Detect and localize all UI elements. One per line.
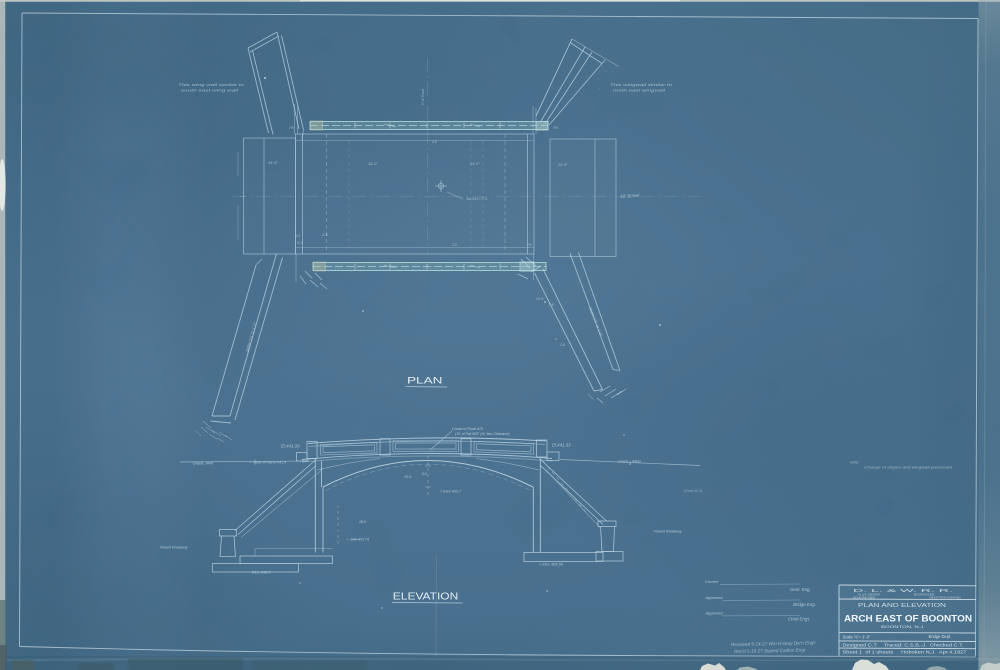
svg-text:C of Track: C of Track [421,88,425,105]
svg-text:This wingwall similar to: This wingwall similar to [610,82,673,87]
svg-text:14'-6: 14'-6 [536,297,544,301]
svg-text:south east wing wall: south east wing wall [181,88,238,93]
svg-text:28-6: 28-6 [358,520,366,524]
svg-text:18'-6: 18'-6 [404,475,412,479]
svg-text:× Elev 385.50: × Elev 385.50 [539,562,564,567]
svg-text:MILES FROM HOBOKEN: MILES FROM HOBOKEN [930,596,961,600]
svg-text:( El. of Rail 68'8" (10' Max: ( El. of Rail 68'8" (10' Max Clearance) [455,432,510,436]
svg-text:ARCH EAST OF BOONTON: ARCH EAST OF BOONTON [844,613,972,623]
svg-text:7½: 7½ [527,243,532,247]
svg-text:Bridge Dept.: Bridge Dept. [929,634,952,639]
svg-text:MOUNTAIN VIEW: MOUNTAIN VIEW [853,596,875,600]
svg-text:Genl. Eng.: Genl. Eng. [790,587,811,592]
svg-text:Approved: Approved [705,610,724,615]
svg-text:√ Elev 403.7: √ Elev 403.7 [440,490,462,494]
svg-text:14'-0": 14'-0" [368,162,378,166]
svg-text:5-6: 5-6 [422,472,427,476]
svg-text:Scale ⅛"= 1'-0": Scale ⅛"= 1'-0" [843,635,871,640]
svg-text:— Base of Rail El 441.6: — Base of Rail El 441.6 [248,461,286,465]
svg-text:Change of slopes and wingwall: Change of slopes and wingwall preserved [864,466,953,470]
svg-text:Sta 511+77.6: Sta 511+77.6 [466,197,487,201]
svg-text:Sheet 1 of 1 sheets Hobok: Sheet 1 of 1 sheets Hoboken N.J. Apr.4.1… [843,650,968,655]
svg-text:6'-0: 6'-0 [297,241,303,245]
svg-text:2-6: 2-6 [559,343,565,347]
svg-text:Paved Roadway: Paved Roadway [654,530,683,534]
svg-text:Approved: Approved [705,595,724,600]
svg-text:Correct: Correct [705,579,719,584]
svg-text:N 2: N 2 [295,234,300,238]
svg-text:2-0: 2-0 [451,243,457,247]
svg-text:7½: 7½ [289,126,294,130]
svg-text:Crown of Road 470: Crown of Road 470 [452,427,483,431]
svg-text:Bridge Eng.: Bridge Eng. [793,602,816,607]
svg-text:This wing wall similar to: This wing wall similar to [178,82,245,87]
svg-text:Chief Eng'r.: Chief Eng'r. [788,616,811,621]
svg-text:D. L. & W. R. R.: D. L. & W. R. R. [853,588,953,593]
svg-text:ELEVATION: ELEVATION [393,592,459,603]
svg-text:north east wingwall: north east wingwall [613,88,665,93]
svg-text:14'-0": 14'-0" [470,162,480,166]
svg-text:— Elev 391.74: — Elev 391.74 [345,538,369,542]
svg-text:(Road 40.5): (Road 40.5) [684,489,702,493]
svg-text:BOONTON, N.J.: BOONTON, N.J. [881,625,925,629]
svg-text:2'-6: 2'-6 [321,233,328,237]
svg-text:PLAN AND ELEVATION: PLAN AND ELEVATION [858,603,947,609]
svg-text:Grade (.44%): Grade (.44%) [618,460,642,464]
svg-text:PLAN: PLAN [407,375,443,385]
svg-text:El.441.33: El.441.33 [552,443,571,448]
svg-text:El.441.33: El.441.33 [281,444,300,449]
svg-text:29'-6": 29'-6" [267,161,278,165]
svg-text:12'-6": 12'-6" [558,163,568,167]
svg-text:Note:: Note: [850,461,859,465]
svg-text:7½: 7½ [553,126,558,130]
svg-text:Grade .44%: Grade .44% [193,462,214,466]
svg-text:x: x [554,337,557,341]
svg-text:Paved Roadway: Paved Roadway [160,546,189,550]
svg-text:4-0: 4-0 [432,140,437,144]
svg-text:Elev 390.3: Elev 390.3 [252,570,271,575]
svg-text:7'-6: 7'-6 [548,303,554,307]
svg-text:←: ← [598,85,602,90]
svg-text:Designed C.T. Traced: C.S.B: Designed C.T. Traced: C.S.B.-J. Checked … [843,643,964,648]
